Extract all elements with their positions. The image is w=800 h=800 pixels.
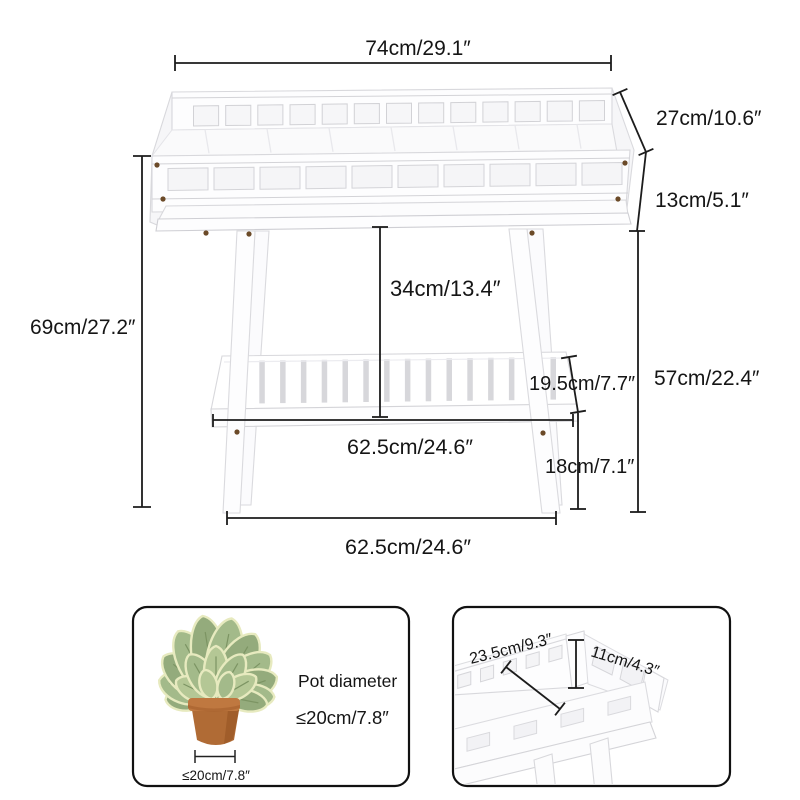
- svg-text:13cm/5.1″: 13cm/5.1″: [655, 189, 749, 212]
- svg-text:69cm/27.2″: 69cm/27.2″: [30, 316, 136, 339]
- svg-text:62.5cm/24.6″: 62.5cm/24.6″: [345, 535, 471, 559]
- svg-text:≤20cm/7.8″: ≤20cm/7.8″: [296, 707, 389, 728]
- svg-text:57cm/22.4″: 57cm/22.4″: [654, 367, 760, 390]
- svg-text:18cm/7.1″: 18cm/7.1″: [545, 456, 634, 478]
- svg-text:≤20cm/7.8″: ≤20cm/7.8″: [182, 768, 250, 783]
- svg-text:62.5cm/24.6″: 62.5cm/24.6″: [347, 435, 473, 459]
- svg-text:27cm/10.6″: 27cm/10.6″: [656, 107, 762, 130]
- svg-text:34cm/13.4″: 34cm/13.4″: [390, 276, 501, 301]
- svg-text:74cm/29.1″: 74cm/29.1″: [365, 37, 471, 60]
- svg-text:Pot diameter: Pot diameter: [298, 671, 397, 691]
- svg-text:19.5cm/7.7″: 19.5cm/7.7″: [529, 373, 635, 395]
